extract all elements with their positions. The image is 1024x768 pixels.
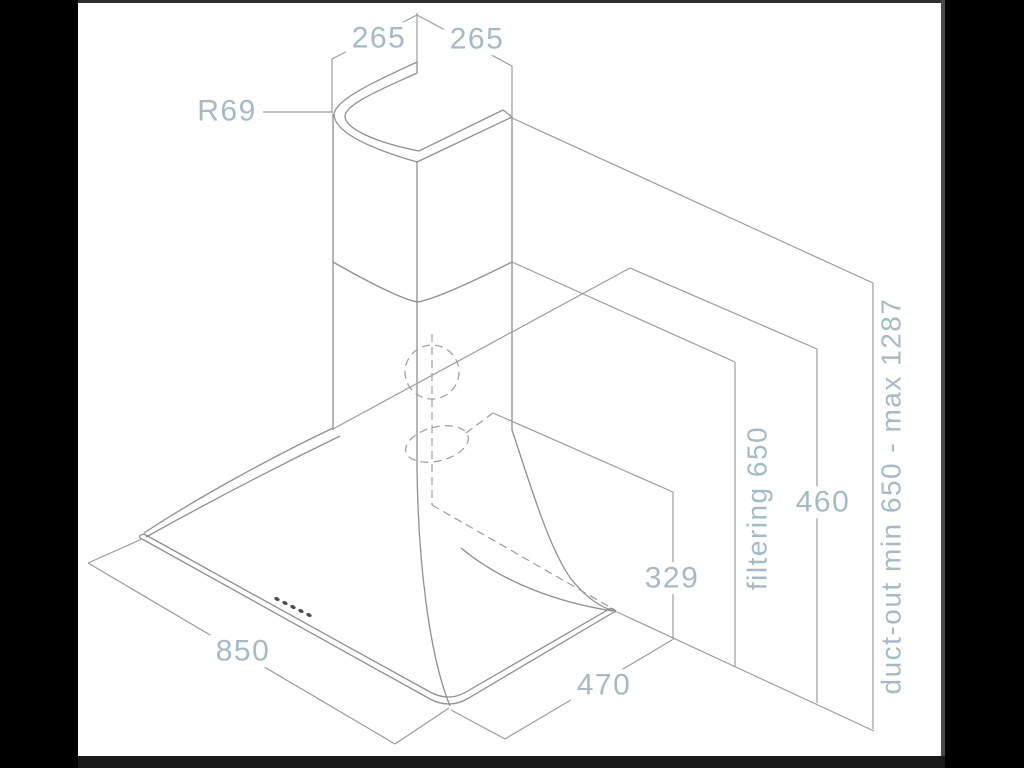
dim-label-460: 460 [790, 486, 857, 518]
duct-center-slant [432, 505, 615, 610]
dim-baseline-slant [617, 612, 874, 731]
dome-right-silhouette [512, 430, 615, 611]
dim-460-ext-up [333, 268, 630, 429]
dim-850-tick-left [88, 539, 142, 563]
dome-front-crease [417, 468, 450, 706]
control-dot [290, 604, 297, 610]
dim-label-265-left: 265 [346, 22, 413, 54]
hood-technical-drawing [0, 0, 1024, 768]
dim-470-tick-left [451, 710, 505, 739]
chimney-outline [333, 62, 512, 468]
dim-label-r69: R69 [191, 95, 263, 127]
duct-outlet-dashed [402, 334, 615, 610]
dim-ductout-ext [512, 118, 873, 283]
control-buttons [274, 596, 313, 618]
chimney-rim-right-joint [503, 110, 512, 117]
dome-left-silhouette-outer [144, 428, 333, 533]
dim-label-265-right: 265 [444, 23, 511, 55]
dim-label-duct-out: duct-out min 650 - max 1287 [876, 298, 905, 695]
duct-rear-ellipse [402, 420, 472, 468]
dim-label-850: 850 [210, 635, 277, 667]
dim-460-ext-down [630, 268, 817, 349]
control-dot [274, 596, 281, 602]
base-bottom-edge [142, 539, 614, 704]
base-top-edge [144, 534, 611, 697]
control-dot [298, 608, 305, 614]
hood-base [139, 534, 615, 704]
dim-label-470: 470 [571, 669, 638, 701]
page-background: 265 265 R69 filtering 650 460 duct-out m… [0, 0, 1024, 768]
duct-ellipse-link [466, 413, 493, 433]
dome-right-lower-crease [461, 548, 613, 611]
dim-label-329: 329 [639, 562, 706, 594]
base-left-tip-cap [139, 534, 144, 539]
dim-label-filtering-650: filtering 650 [742, 426, 771, 590]
control-dot [306, 612, 313, 618]
chimney-rim-outer [334, 62, 512, 162]
dim-850-tick-right [395, 708, 449, 744]
dim-filtering-tick [512, 262, 735, 362]
chimney-telescopic-seam [333, 262, 512, 302]
dome-left-silhouette-inner [146, 436, 340, 537]
control-dot [282, 600, 289, 606]
